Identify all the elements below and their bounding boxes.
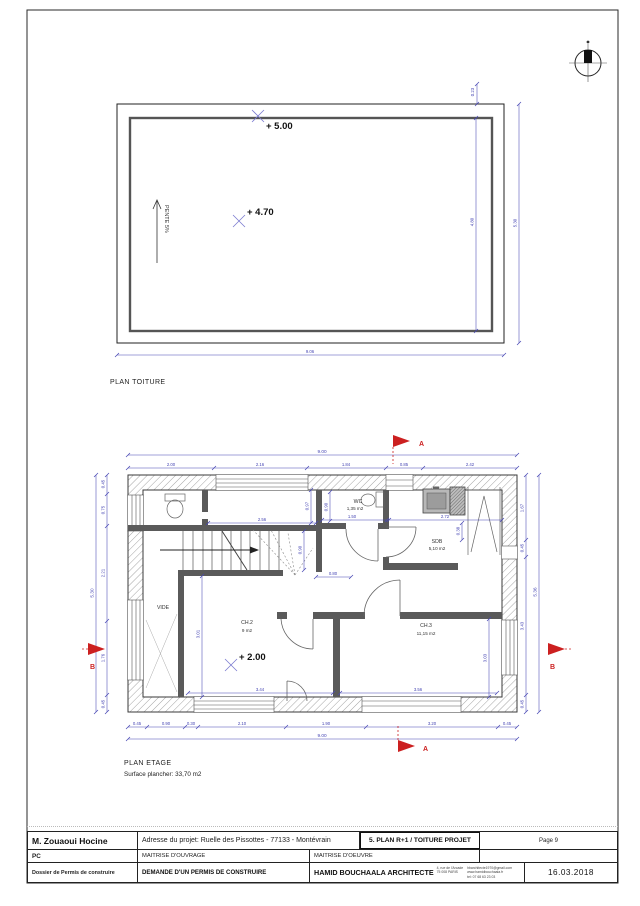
staircase bbox=[146, 530, 313, 692]
slope-arrow: PENTE 5% bbox=[153, 200, 169, 263]
roof-dim-outer-height: 5.30 bbox=[513, 218, 518, 227]
room-label-wc: WC bbox=[354, 499, 363, 505]
drawing-date: 16.03.2018 bbox=[525, 863, 617, 882]
fixtures bbox=[165, 487, 500, 556]
section-b-label: B bbox=[550, 664, 555, 671]
maitrise-oeuvre-header: MAITRISE D'OEUVRE bbox=[310, 850, 480, 862]
architect-phone: tel: 07 68 63 23 03 bbox=[467, 875, 495, 879]
maitrise-ouvrage-header: MAITRISE D'OUVRAGE bbox=[138, 850, 310, 862]
dim-right-2: 3.43 bbox=[520, 621, 525, 630]
roof-mid-level: + 4.70 bbox=[233, 207, 274, 227]
floor-surface-label: Surface plancher: 33,70 m2 bbox=[124, 771, 202, 778]
demande-label: DEMANDE D'UN PERMIS DE CONSTRUIRE bbox=[138, 863, 310, 882]
dim-right-3: 0.45 bbox=[520, 699, 525, 708]
dim-left-0: 0.45 bbox=[101, 479, 106, 488]
dim-top-4: 2.42 bbox=[466, 462, 475, 467]
roof-level-ridge-text: + 5.00 bbox=[266, 121, 293, 132]
dim-right-total: 5.36 bbox=[533, 587, 538, 597]
dim-ch3-depth: 3.03 bbox=[483, 653, 488, 662]
roof-dim-edge: 0.23 bbox=[470, 87, 475, 96]
shower-icon bbox=[450, 487, 465, 515]
roof-dim-width: 9.06 bbox=[306, 349, 315, 354]
dim-corridor: 0.97 bbox=[305, 501, 310, 510]
dim-ch3-width: 3.56 bbox=[414, 687, 423, 692]
page-number: Page 9 bbox=[480, 832, 617, 849]
dim-left-3: 1.76 bbox=[101, 653, 106, 662]
floor-plan: WC 1,35 m2 SDB 5,10 m2 CH.2 9 m2 CH.3 11… bbox=[80, 435, 573, 778]
dim-stair-width: 0.90 bbox=[298, 545, 303, 554]
dim-bottom-0: 0.45 bbox=[133, 721, 142, 726]
section-marker-b-right: B bbox=[548, 643, 573, 671]
doc-code: PC bbox=[28, 850, 138, 862]
room-area-ch2: 9 m2 bbox=[242, 628, 253, 633]
section-a-label: A bbox=[419, 441, 424, 448]
floor-plan-title: PLAN ETAGE bbox=[124, 760, 171, 767]
drawing-sheet: + 5.00 + 4.70 PENTE 5% 0.23 4.80 5.30 9.… bbox=[0, 0, 640, 906]
dim-top-total: 9.00 bbox=[317, 449, 327, 454]
dim-bottom-total: 9.00 bbox=[317, 733, 327, 738]
architect-address-line2: 75 008 PARIS bbox=[437, 870, 458, 874]
dim-ch2-width: 3.44 bbox=[256, 687, 265, 692]
title-block: M. Zouaoui Hocine Adresse du projet: Rue… bbox=[27, 831, 618, 883]
sheet-frame bbox=[27, 10, 618, 883]
project-address: Adresse du projet: Ruelle des Pissottes … bbox=[138, 832, 360, 849]
room-label-sdb: SDB bbox=[432, 539, 443, 545]
dim-bottom-1: 0.90 bbox=[162, 721, 171, 726]
plan-drawing: + 5.00 + 4.70 PENTE 5% 0.23 4.80 5.30 9.… bbox=[0, 0, 640, 906]
roof-ridge-level: + 5.00 bbox=[252, 110, 293, 132]
room-label-vide: VIDE bbox=[157, 605, 170, 611]
dim-right-1: 0.45 bbox=[520, 543, 525, 552]
roof-dim-inner-height: 4.80 bbox=[470, 217, 475, 226]
dim-left-1: 0.75 bbox=[101, 505, 106, 514]
dim-stair-run: 0.80 bbox=[329, 571, 338, 576]
dim-sdb-width: 2.72 bbox=[441, 514, 450, 519]
client-name: M. Zouaoui Hocine bbox=[28, 832, 138, 849]
roof-level-mid-text: + 4.70 bbox=[247, 207, 274, 218]
slope-label: PENTE 5% bbox=[163, 205, 169, 233]
section-marker-a-bottom: A bbox=[398, 726, 428, 753]
wc-toilet-icon bbox=[376, 492, 384, 507]
dim-top-2: 1.84 bbox=[342, 462, 351, 467]
dim-sdb-recess: 0.38 bbox=[456, 526, 461, 535]
dim-bottom-3: 2.10 bbox=[238, 721, 247, 726]
room-area-ch3: 11,15 m2 bbox=[417, 631, 436, 636]
dim-left-total: 5.30 bbox=[90, 588, 95, 598]
room-label-ch2: CH.2 bbox=[241, 620, 253, 626]
dim-wc-width: 1.50 bbox=[348, 514, 357, 519]
dim-bottom-2: 0.30 bbox=[187, 721, 196, 726]
room-area-wc: 1,35 m2 bbox=[347, 506, 364, 511]
roof-plan-title: PLAN TOITURE bbox=[110, 379, 166, 386]
north-compass-icon bbox=[569, 41, 607, 82]
dim-right-0: 1.67 bbox=[520, 503, 525, 512]
architect-cell: HAMID BOUCHAALA ARCHITECTE 4, rue de l'A… bbox=[310, 863, 525, 882]
dossier-label: Dossier de Permis de construire bbox=[28, 863, 138, 882]
section-marker-a-top: A bbox=[393, 435, 424, 464]
sheet-title: 5. PLAN R+1 / TOITURE PROJET bbox=[360, 832, 480, 849]
dim-wc-depth: 0.90 bbox=[324, 502, 329, 511]
architect-contact: 4, rue de l'Arcade 75 008 PARIS hbarchit… bbox=[437, 866, 512, 879]
dim-bottom-4: 1.90 bbox=[322, 721, 331, 726]
dim-hall-width: 2.56 bbox=[258, 517, 267, 522]
architect-name: HAMID BOUCHAALA ARCHITECTE bbox=[314, 868, 434, 877]
dim-top-1: 2.16 bbox=[256, 462, 265, 467]
section-b-label: B bbox=[90, 664, 95, 671]
room-label-ch3: CH.3 bbox=[420, 623, 432, 629]
dim-bottom-5: 3.20 bbox=[428, 721, 437, 726]
roof-plan: + 5.00 + 4.70 PENTE 5% 0.23 4.80 5.30 9.… bbox=[110, 82, 521, 386]
separator-line bbox=[27, 826, 618, 827]
dim-top-0: 2.00 bbox=[167, 462, 176, 467]
dim-bottom-6: 0.45 bbox=[503, 721, 512, 726]
empty-cell bbox=[480, 850, 617, 862]
floor-level-text: + 2.00 bbox=[239, 652, 266, 663]
closet-icon bbox=[468, 487, 500, 555]
dim-left-2: 2.21 bbox=[101, 568, 106, 577]
section-a-label: A bbox=[423, 746, 428, 753]
dim-top-3: 0.85 bbox=[400, 462, 409, 467]
dim-ch2-depth: 3.01 bbox=[196, 629, 201, 638]
dim-left-4: 0.45 bbox=[101, 699, 106, 708]
room-area-sdb: 5,10 m2 bbox=[429, 546, 446, 551]
interior-walls bbox=[128, 490, 502, 697]
floor-level: + 2.00 bbox=[225, 652, 266, 671]
